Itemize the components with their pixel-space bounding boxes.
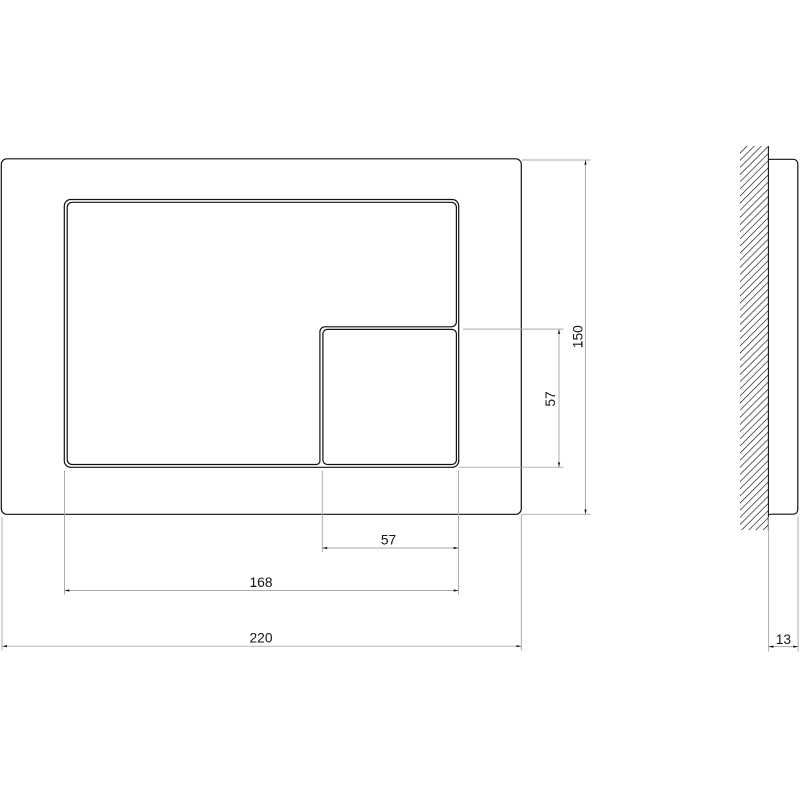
svg-text:150: 150 [570, 325, 585, 348]
svg-text:220: 220 [249, 630, 272, 645]
svg-text:57: 57 [381, 532, 396, 547]
svg-text:13: 13 [776, 632, 792, 647]
svg-text:168: 168 [249, 575, 272, 590]
svg-text:57: 57 [543, 391, 558, 406]
